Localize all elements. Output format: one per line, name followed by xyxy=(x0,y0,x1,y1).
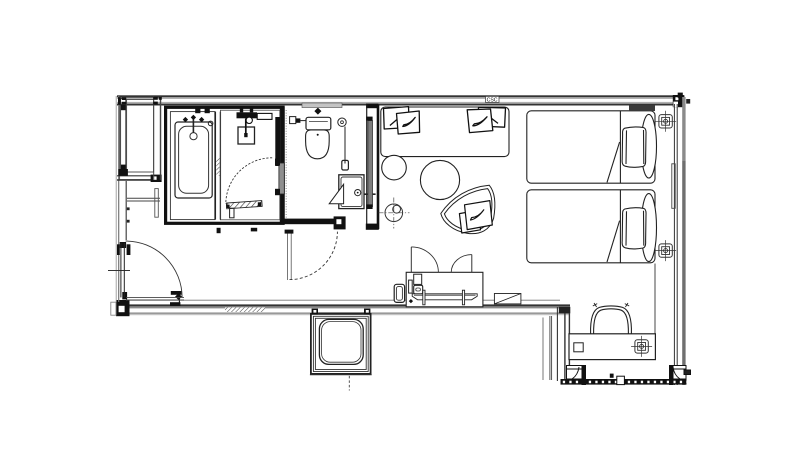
svg-text:CSC: CSC xyxy=(487,98,498,104)
